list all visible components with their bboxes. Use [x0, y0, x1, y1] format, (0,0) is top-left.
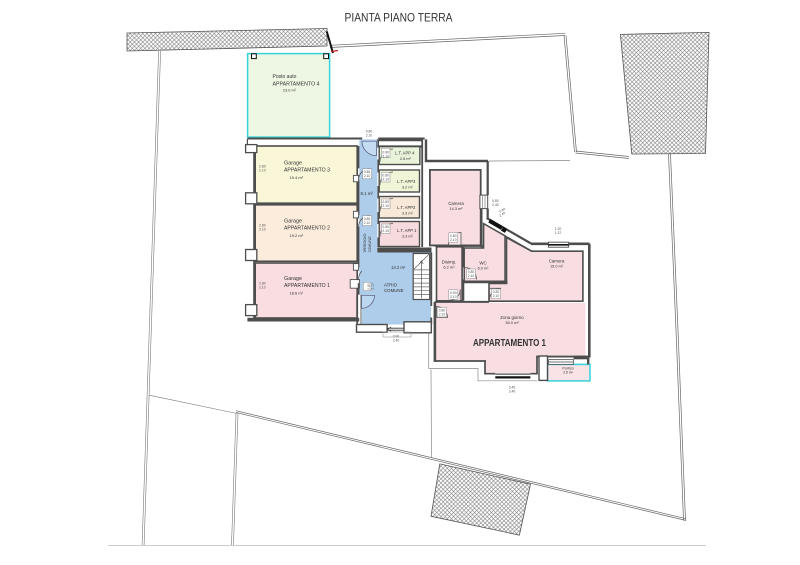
svg-text:ATRIO: ATRIO: [384, 283, 398, 288]
svg-text:19.2 m²: 19.2 m²: [290, 233, 304, 238]
svg-text:3.3 m²: 3.3 m²: [402, 235, 413, 239]
svg-text:L.T. APP2: L.T. APP2: [397, 205, 416, 210]
svg-text:L.T. APP 1: L.T. APP 1: [397, 228, 417, 233]
svg-text:3.2 m²: 3.2 m²: [402, 185, 413, 189]
svg-text:2.10: 2.10: [370, 283, 374, 290]
svg-text:Garage: Garage: [284, 218, 302, 224]
svg-text:2.40: 2.40: [492, 203, 499, 207]
svg-text:2.10: 2.10: [382, 229, 389, 233]
svg-text:2.10: 2.10: [259, 169, 266, 173]
svg-text:2.10: 2.10: [259, 228, 266, 232]
svg-text:6.2 m²: 6.2 m²: [443, 265, 455, 270]
svg-text:23.0 m²: 23.0 m²: [283, 89, 297, 93]
svg-text:Garage: Garage: [284, 276, 302, 282]
svg-text:PIANTA PIANO TERRA: PIANTA PIANO TERRA: [345, 11, 453, 25]
svg-text:2.10: 2.10: [259, 286, 266, 290]
svg-text:COMUNE: COMUNE: [384, 288, 404, 293]
svg-text:COMUNE: COMUNE: [367, 236, 372, 254]
svg-text:2.6 m²: 2.6 m²: [400, 157, 411, 161]
svg-text:2.10: 2.10: [382, 155, 389, 159]
svg-text:2.10: 2.10: [382, 178, 389, 182]
svg-text:L.T. APP3: L.T. APP3: [397, 179, 416, 184]
svg-text:APPARTAMENTO 2: APPARTAMENTO 2: [284, 225, 330, 231]
svg-text:Camera: Camera: [448, 201, 464, 206]
svg-text:Garage: Garage: [284, 160, 302, 166]
svg-text:2.10: 2.10: [450, 295, 457, 299]
svg-text:18.6 m²: 18.6 m²: [290, 291, 304, 296]
svg-text:1.37: 1.37: [555, 231, 562, 235]
svg-text:2.10: 2.10: [364, 174, 371, 178]
svg-text:15.0 m²: 15.0 m²: [550, 265, 564, 269]
svg-text:2.10: 2.10: [366, 134, 373, 138]
svg-text:13.2 m²: 13.2 m²: [391, 265, 406, 270]
svg-text:2.10: 2.10: [382, 204, 389, 208]
svg-text:2.40: 2.40: [393, 339, 400, 343]
svg-text:2.10: 2.10: [364, 221, 371, 225]
svg-text:2.5 m²: 2.5 m²: [563, 371, 573, 375]
svg-text:APPARTAMENTO 4: APPARTAMENTO 4: [273, 82, 320, 88]
svg-text:Posto auto: Posto auto: [273, 74, 297, 80]
svg-text:APPARTAMENTO 1: APPARTAMENTO 1: [473, 337, 546, 349]
svg-text:14.3 m²: 14.3 m²: [450, 207, 464, 211]
svg-text:Camera: Camera: [549, 259, 565, 264]
svg-text:2.10: 2.10: [468, 274, 475, 278]
svg-text:8.1 m²: 8.1 m²: [361, 191, 374, 196]
svg-text:APPARTAMENTO 1: APPARTAMENTO 1: [284, 283, 330, 289]
svg-text:6.0 m²: 6.0 m²: [478, 267, 489, 271]
svg-text:APPARTAMENTO 3: APPARTAMENTO 3: [284, 167, 330, 173]
svg-text:2.10: 2.10: [439, 313, 446, 317]
svg-text:WC: WC: [479, 261, 486, 266]
svg-text:3.3 m²: 3.3 m²: [402, 212, 413, 216]
svg-text:36.0 m²: 36.0 m²: [505, 320, 519, 325]
svg-text:L.T. APP 4: L.T. APP 4: [395, 150, 415, 155]
svg-text:19.4 m²: 19.4 m²: [290, 175, 304, 180]
svg-text:2.10: 2.10: [493, 294, 500, 298]
svg-text:2.10: 2.10: [450, 238, 457, 242]
svg-text:2.40: 2.40: [509, 390, 516, 394]
